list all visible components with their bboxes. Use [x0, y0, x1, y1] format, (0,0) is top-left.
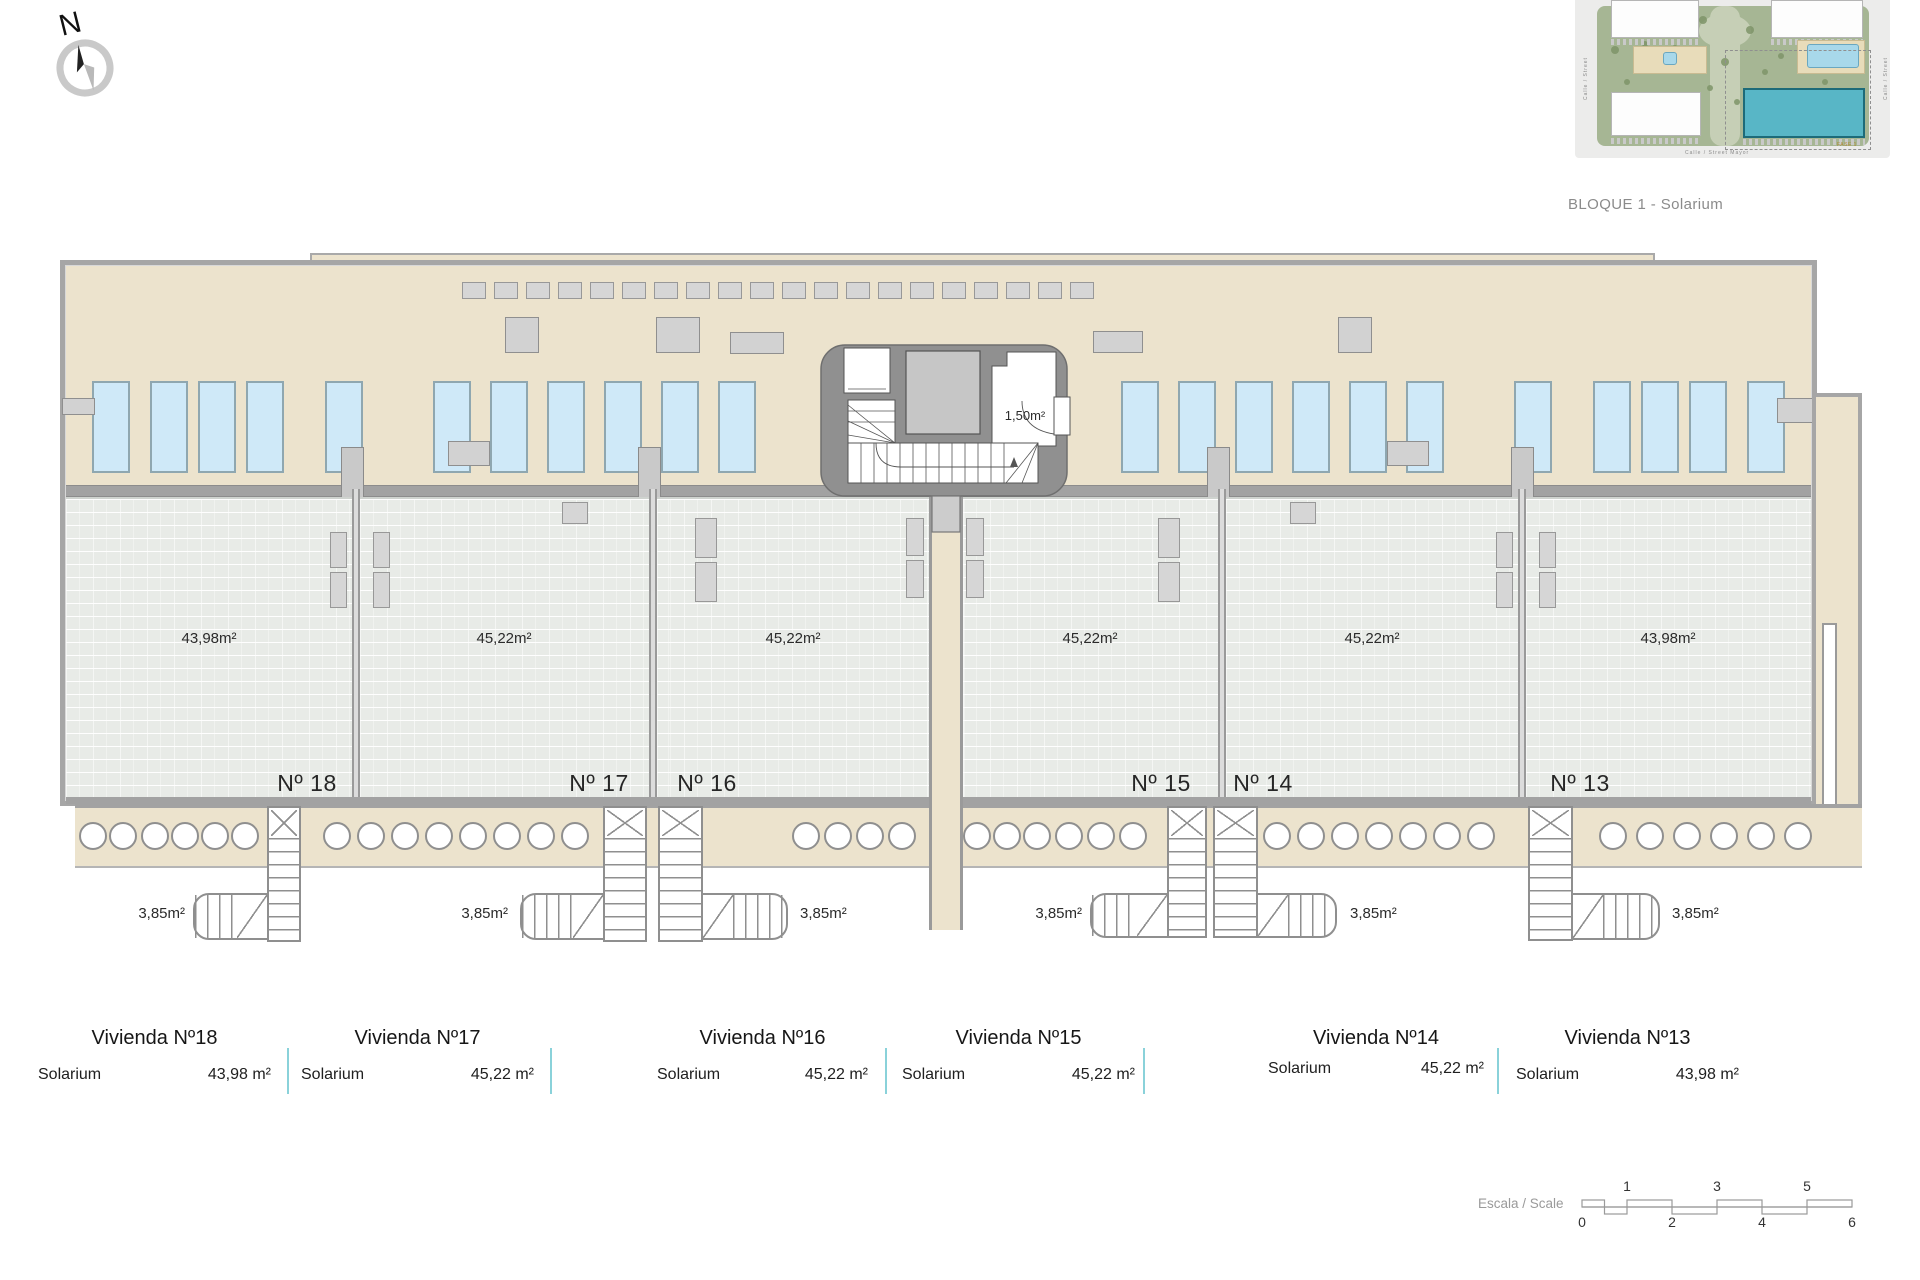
central-stair-core: 1,50m²: [821, 345, 1067, 535]
summary-column-divider: [287, 1048, 289, 1094]
summary-row-value: 45,22 m²: [418, 1066, 535, 1086]
walkway-planter-circle: [459, 822, 487, 850]
deck-furniture: [1338, 317, 1372, 353]
walkway-planter-circle: [1399, 822, 1427, 850]
sun-lounger: [942, 282, 966, 299]
summary-row-value: 45,22 m²: [1376, 1060, 1484, 1080]
walkway-planter-circle: [888, 822, 916, 850]
terrace-lounger: [695, 518, 717, 558]
plunge-pool: [1593, 381, 1631, 473]
scale-number: 2: [1662, 1214, 1682, 1230]
summary-column: Vivienda Nº13Solarium43,98 m²: [1514, 1000, 1741, 1120]
scale-number: 0: [1572, 1214, 1592, 1230]
access-stair-run: [520, 893, 605, 940]
sun-lounger: [750, 282, 774, 299]
plunge-pool: [1349, 381, 1387, 473]
terrace-lounger: [966, 560, 984, 598]
stair-treads: [1092, 895, 1137, 936]
plunge-pool: [1235, 381, 1273, 473]
stair-landing: [662, 810, 699, 836]
sun-lounger: [462, 282, 486, 299]
wing-planter: [1822, 623, 1837, 807]
plunge-pool: [246, 381, 284, 473]
summary-table: Vivienda Nº18Solarium43,98 m²Vivienda Nº…: [0, 1000, 1920, 1130]
party-wall: [1218, 489, 1226, 800]
summary-row-label: Solarium: [38, 1066, 157, 1086]
unit-number-label: Nº 16: [647, 770, 767, 798]
summary-column-title: Vivienda Nº16: [655, 1027, 870, 1051]
stair-treads: [269, 838, 299, 940]
walkway-planter-circle: [527, 822, 555, 850]
access-stair-shaft: [1213, 806, 1258, 938]
plunge-pool: [604, 381, 642, 473]
walkway-planter-circle: [391, 822, 419, 850]
summary-row-value: 45,22 m²: [1019, 1066, 1136, 1086]
terrace-lounger: [1158, 562, 1180, 602]
access-stair-shaft: [1167, 806, 1207, 938]
unit-area-label: 45,22m²: [733, 630, 853, 650]
walkway-planter-circle: [1087, 822, 1115, 850]
summary-row-value: 43,98 m²: [155, 1066, 272, 1086]
summary-column-divider: [550, 1048, 552, 1094]
sun-lounger: [878, 282, 902, 299]
sun-lounger: [526, 282, 550, 299]
walkway-planter-circle: [79, 822, 107, 850]
stair-winder: [703, 895, 733, 938]
party-wall: [1518, 489, 1526, 800]
access-stair-run: [1571, 893, 1660, 940]
walkway-planter-circle: [963, 822, 991, 850]
stair-landing: [1217, 810, 1254, 836]
sun-lounger: [1006, 282, 1030, 299]
terrace-lounger: [1496, 532, 1513, 568]
plunge-pool: [1689, 381, 1727, 473]
stair-area-label: 3,85m²: [1350, 905, 1450, 925]
walkway-planter-circle: [1331, 822, 1359, 850]
summary-row-value: 45,22 m²: [763, 1066, 869, 1086]
sun-lounger: [910, 282, 934, 299]
sun-lounger: [654, 282, 678, 299]
stair-treads: [1215, 838, 1256, 936]
access-stair-run: [1090, 893, 1169, 938]
walkway-planter-circle: [1599, 822, 1627, 850]
unit-number-label: Nº 18: [247, 770, 367, 798]
walkway-planter-circle: [824, 822, 852, 850]
core-room: [844, 348, 890, 393]
summary-row-value: 43,98 m²: [1628, 1066, 1740, 1086]
access-stair-run: [701, 893, 788, 940]
walkway-planter-circle: [1365, 822, 1393, 850]
summary-column-title: Vivienda Nº13: [1514, 1027, 1741, 1051]
summary-column-title: Vivienda Nº15: [900, 1027, 1137, 1051]
stair-winder: [1573, 895, 1603, 938]
stair-treads: [605, 838, 645, 940]
stair-area-label: 3,85m²: [800, 905, 900, 925]
plunge-pool: [150, 381, 188, 473]
walkway-planter-circle: [856, 822, 884, 850]
sun-lounger: [686, 282, 710, 299]
core-landing-stub: [932, 496, 960, 532]
elevator: [906, 351, 980, 434]
walkway-planter-circle: [323, 822, 351, 850]
unit-area-label: 43,98m²: [149, 630, 269, 650]
summary-row-label: Solarium: [1268, 1060, 1378, 1080]
terrace-lounger: [330, 532, 347, 568]
stair-treads: [195, 895, 237, 938]
sun-lounger: [494, 282, 518, 299]
access-stair-run: [1256, 893, 1337, 938]
stair-winder: [1137, 895, 1167, 936]
plunge-pool: [490, 381, 528, 473]
sun-lounger: [846, 282, 870, 299]
walkway-planter-circle: [1433, 822, 1461, 850]
sun-lounger: [590, 282, 614, 299]
deck-furniture: [1093, 331, 1143, 353]
terrace-lounger: [1496, 572, 1513, 608]
scale-number: 4: [1752, 1214, 1772, 1230]
walkway-planter-circle: [141, 822, 169, 850]
sun-lounger: [1038, 282, 1062, 299]
summary-column: Vivienda Nº18Solarium43,98 m²: [36, 1000, 273, 1120]
walkway-planter-circle: [1467, 822, 1495, 850]
sun-lounger: [782, 282, 806, 299]
scale-number: 3: [1707, 1178, 1727, 1194]
side-wing: [1812, 393, 1862, 868]
walkway-planter-circle: [561, 822, 589, 850]
summary-row-label: Solarium: [1516, 1066, 1630, 1086]
summary-row-label: Solarium: [902, 1066, 1021, 1086]
stair-area-label: 3,85m²: [85, 905, 185, 925]
deck-furniture: [656, 317, 700, 353]
walkway-planter-circle: [1055, 822, 1083, 850]
sun-lounger: [974, 282, 998, 299]
access-stair-run: [193, 893, 269, 940]
stair-treads: [660, 838, 701, 940]
scale-number: 1: [1617, 1178, 1637, 1194]
stair-area-label: 3,85m²: [408, 905, 508, 925]
plunge-pool: [1121, 381, 1159, 473]
stair-treads: [1603, 895, 1658, 938]
wc-door-leaf: [1054, 397, 1070, 435]
walkway-planter-circle: [1747, 822, 1775, 850]
unit-area-label: 45,22m²: [1030, 630, 1150, 650]
plunge-pool: [1292, 381, 1330, 473]
stair-landing: [607, 810, 643, 836]
wc-area-label: 1,50m²: [1005, 408, 1046, 423]
terrace-lounger: [330, 572, 347, 608]
plunge-pool: [661, 381, 699, 473]
access-stair-shaft: [658, 806, 703, 942]
sun-lounger: [718, 282, 742, 299]
terrace-lounger: [1290, 502, 1316, 524]
plunge-pool: [547, 381, 585, 473]
walkway-planter-circle: [1784, 822, 1812, 850]
walkway-planter-circle: [231, 822, 259, 850]
stair-area-label: 3,85m²: [1672, 905, 1772, 925]
deck-furniture: [505, 317, 539, 353]
unit-area-label: 45,22m²: [1312, 630, 1432, 650]
walkway-planter-circle: [1710, 822, 1738, 850]
stair-treads: [1530, 838, 1571, 939]
summary-column-divider: [1497, 1048, 1499, 1094]
terrace-lounger: [562, 502, 588, 524]
stair-landing: [1532, 810, 1569, 836]
stair-area-label: 3,85m²: [982, 905, 1082, 925]
terrace-lounger: [373, 532, 390, 568]
summary-column-divider: [1143, 1048, 1145, 1094]
deck-furniture: [1777, 398, 1813, 423]
deck-furniture: [1387, 441, 1429, 466]
deck-furniture: [62, 398, 95, 415]
party-wall: [352, 489, 360, 800]
stair-winder: [237, 895, 267, 938]
scale-number: 5: [1797, 1178, 1817, 1194]
sun-lounger: [558, 282, 582, 299]
access-stair-shaft: [267, 806, 301, 942]
summary-column-title: Vivienda Nº18: [36, 1027, 273, 1051]
stair-treads: [1288, 895, 1335, 936]
summary-row-label: Solarium: [657, 1066, 765, 1086]
scale-number: 6: [1842, 1214, 1862, 1230]
walkway-planter-circle: [1636, 822, 1664, 850]
summary-column-title: Vivienda Nº14: [1266, 1027, 1486, 1051]
stair-treads: [1169, 838, 1205, 936]
terrace-lounger: [1539, 532, 1556, 568]
walkway-planter-circle: [1023, 822, 1051, 850]
unit-number-label: Nº 13: [1520, 770, 1640, 798]
unit-area-label: 43,98m²: [1608, 630, 1728, 650]
walkway-planter-circle: [109, 822, 137, 850]
page: N FASE 1 Calle / Street Mayor Calle / St…: [0, 0, 1920, 1280]
plunge-pool: [718, 381, 756, 473]
summary-column-title: Vivienda Nº17: [299, 1027, 536, 1051]
terrace-lounger: [1158, 518, 1180, 558]
walkway-planter-circle: [993, 822, 1021, 850]
unit-number-label: Nº 17: [539, 770, 659, 798]
scale-label: Escala / Scale: [1478, 1196, 1564, 1211]
walkway-planter-circle: [493, 822, 521, 850]
summary-column: Vivienda Nº16Solarium45,22 m²: [655, 1000, 870, 1120]
summary-column: Vivienda Nº15Solarium45,22 m²: [900, 1000, 1137, 1120]
sun-lounger: [1070, 282, 1094, 299]
walkway-planter-circle: [171, 822, 199, 850]
terrace-lounger: [695, 562, 717, 602]
sun-lounger: [622, 282, 646, 299]
terrace-lounger: [906, 560, 924, 598]
party-wall: [649, 489, 657, 800]
stair-landing: [271, 810, 297, 836]
stair-landing: [1171, 810, 1203, 836]
stair-winder: [1258, 895, 1288, 936]
deck-furniture: [448, 441, 490, 466]
unit-area-label: 45,22m²: [444, 630, 564, 650]
stair-treads: [733, 895, 786, 938]
sun-lounger: [814, 282, 838, 299]
deck-furniture: [730, 332, 784, 354]
plunge-pool: [1747, 381, 1785, 473]
walkway-planter-circle: [425, 822, 453, 850]
walkway-planter-circle: [201, 822, 229, 850]
access-stair-shaft: [603, 806, 647, 942]
stair-treads: [522, 895, 573, 938]
unit-corridor: [929, 490, 963, 930]
summary-column: Vivienda Nº17Solarium45,22 m²: [299, 1000, 536, 1120]
walkway-planter-circle: [1119, 822, 1147, 850]
plunge-pool: [1641, 381, 1679, 473]
stair-winder: [573, 895, 603, 938]
summary-row-label: Solarium: [301, 1066, 420, 1086]
terrace-lounger: [1539, 572, 1556, 608]
walkway-planter-circle: [1297, 822, 1325, 850]
terrace-lounger: [373, 572, 390, 608]
access-stair-shaft: [1528, 806, 1573, 941]
walkway-planter-circle: [792, 822, 820, 850]
walkway-planter-circle: [1263, 822, 1291, 850]
summary-column: Vivienda Nº14Solarium45,22 m²: [1266, 1000, 1486, 1120]
summary-column-divider: [885, 1048, 887, 1094]
walkway-planter-circle: [1673, 822, 1701, 850]
walkway-planter-circle: [357, 822, 385, 850]
plunge-pool: [198, 381, 236, 473]
plunge-pool: [92, 381, 130, 473]
